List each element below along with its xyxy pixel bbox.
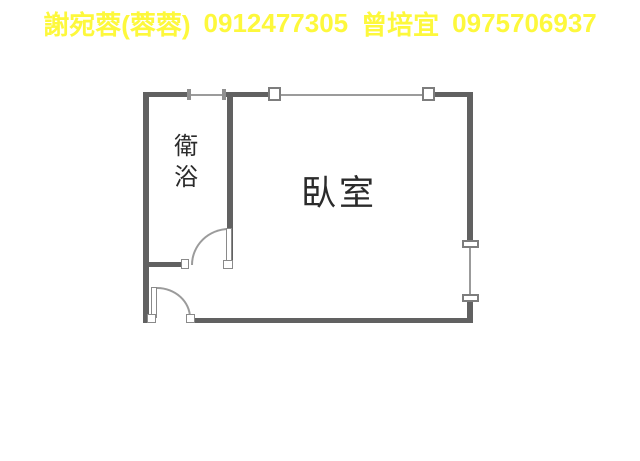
right-window-post-bottom xyxy=(462,294,479,302)
bathroom-door-jamb-left xyxy=(181,259,189,269)
top-window-post-left xyxy=(268,87,281,101)
bathroom-window-line xyxy=(191,94,222,96)
contact-caption: 謝宛蓉(蓉蓉) 0912477305 曾培宜 0975706937 xyxy=(0,0,640,46)
entry-door-jamb-right xyxy=(186,314,195,323)
entry-door-jamb-left xyxy=(147,314,156,323)
bathroom-window-tick-right xyxy=(222,89,226,100)
wall-bathroom-bottom xyxy=(143,262,183,267)
bathroom-door-jamb-right xyxy=(223,260,233,269)
top-window-line xyxy=(279,94,424,96)
agent-2-name: 曾培宜 xyxy=(361,5,439,42)
room-label-bedroom: 臥室 xyxy=(301,174,377,214)
room-label-bathroom: 衛浴 xyxy=(169,133,197,195)
top-window-post-right xyxy=(422,87,435,101)
floorplan-screenshot: { "floorplan": { "rooms": [ { "id": "bat… xyxy=(0,0,640,461)
wall-bottom xyxy=(191,318,473,323)
agent-2-phone: 0975706937 xyxy=(452,8,597,39)
wall-right-upper xyxy=(467,92,473,240)
agent-1-phone: 0912477305 xyxy=(204,8,349,39)
bathroom-door-leaf xyxy=(226,228,232,262)
right-window-post-top xyxy=(462,240,479,248)
agent-1-name: 謝宛蓉(蓉蓉) xyxy=(43,5,190,42)
wall-left xyxy=(143,92,149,323)
wall-top-left-segment xyxy=(143,92,190,97)
floor-plan: 衛浴 臥室 xyxy=(0,0,640,461)
right-window-line xyxy=(469,246,471,296)
